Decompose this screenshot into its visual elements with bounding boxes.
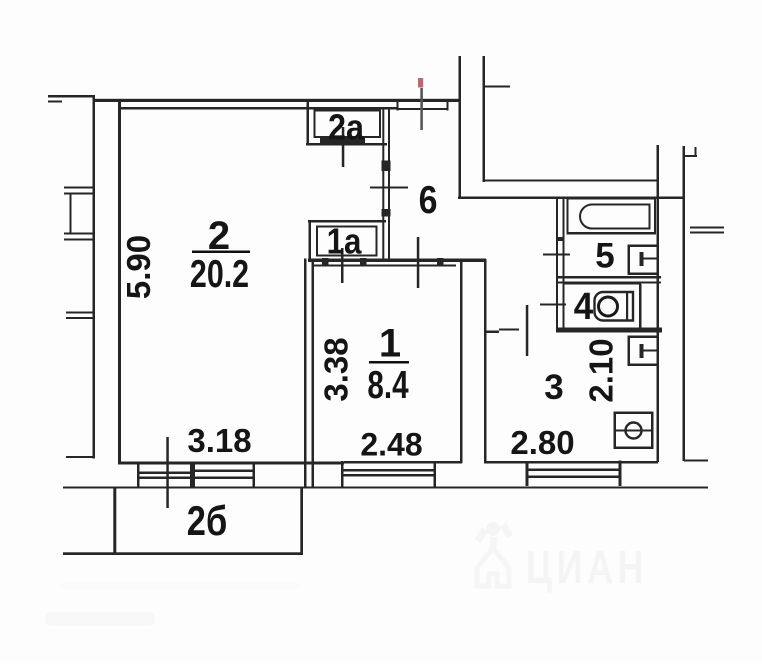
svg-text:20.2: 20.2 [190, 252, 249, 295]
svg-text:1a: 1a [327, 221, 362, 262]
svg-text:4: 4 [574, 285, 594, 328]
svg-text:2.48: 2.48 [360, 427, 422, 463]
svg-text:6: 6 [419, 178, 438, 222]
svg-text:2a: 2a [328, 108, 365, 148]
svg-text:ЦИАН: ЦИАН [526, 542, 649, 593]
svg-text:2.10: 2.10 [583, 338, 620, 402]
svg-text:8.4: 8.4 [367, 364, 409, 407]
svg-text:1: 1 [379, 322, 401, 366]
svg-text:2.80: 2.80 [510, 424, 574, 461]
svg-text:5: 5 [595, 237, 614, 276]
svg-text:3.38: 3.38 [318, 337, 355, 401]
svg-text:2: 2 [208, 214, 230, 258]
svg-text:3.18: 3.18 [187, 422, 251, 459]
svg-text:3: 3 [544, 368, 563, 407]
svg-text:2б: 2б [187, 498, 227, 545]
svg-text:5.90: 5.90 [120, 235, 157, 299]
